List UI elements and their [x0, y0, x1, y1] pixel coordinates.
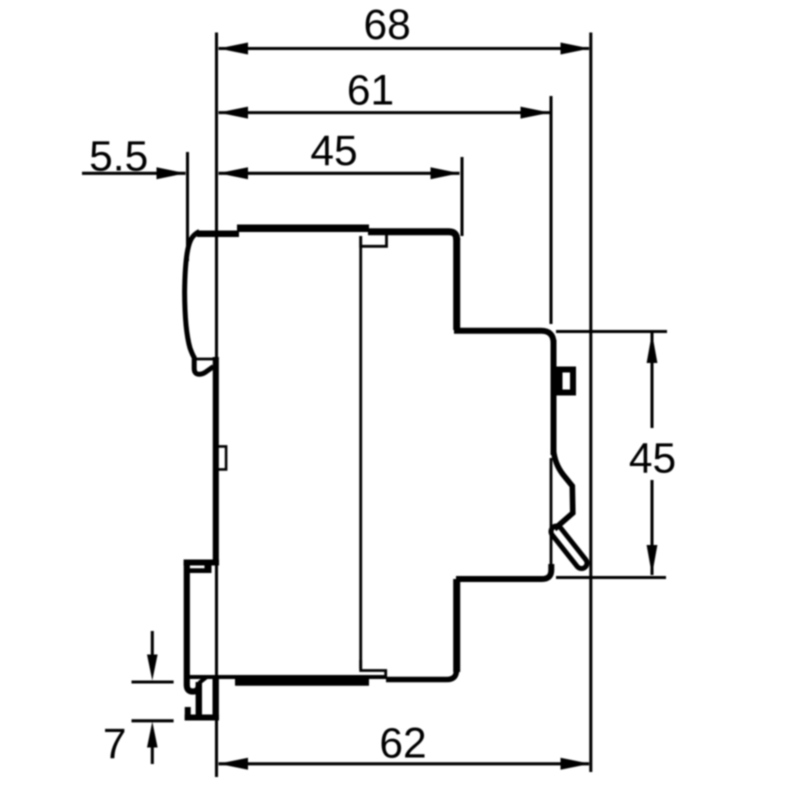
svg-text:7: 7 [103, 721, 127, 768]
svg-text:68: 68 [363, 2, 410, 49]
svg-text:45: 45 [310, 128, 357, 175]
svg-text:5.5: 5.5 [89, 134, 148, 181]
svg-text:45: 45 [629, 436, 676, 483]
svg-text:62: 62 [379, 721, 426, 768]
svg-text:61: 61 [347, 68, 394, 115]
